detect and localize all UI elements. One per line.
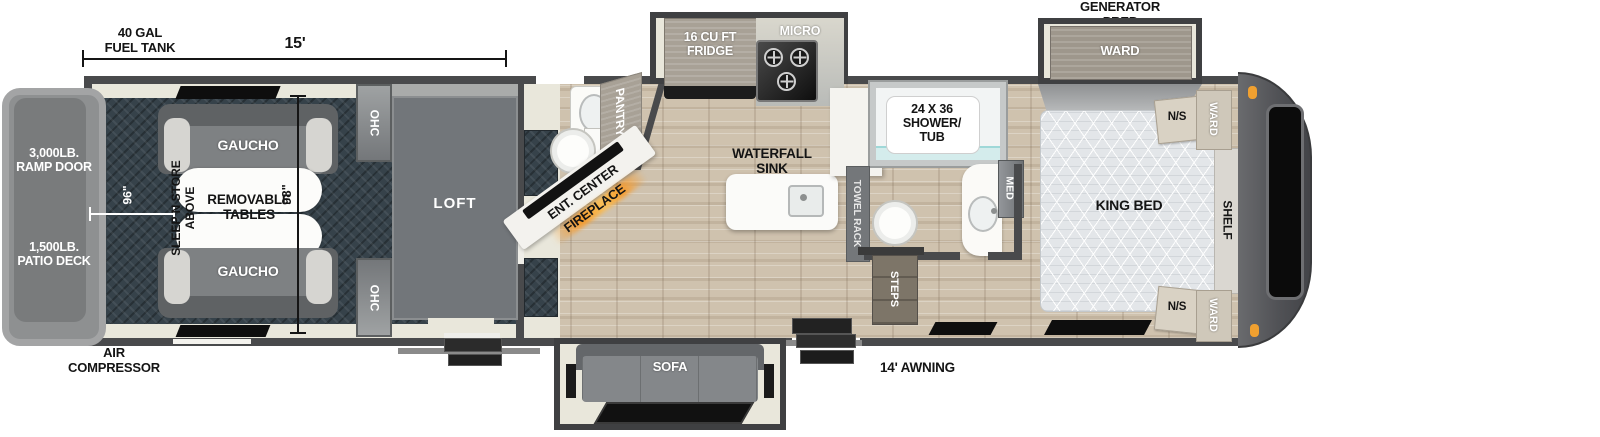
dim-tick-98-bottom	[290, 332, 306, 334]
ward-top-label: WARD	[1196, 90, 1230, 148]
burner-icon	[777, 72, 796, 91]
bedroom-floor-mat	[1044, 320, 1152, 335]
waterfall-sink-label: WATERFALLSINK	[714, 146, 830, 176]
bath-entry-mat	[929, 322, 998, 335]
sleep-n-store-label: SLEEP N STOREABOVE	[123, 189, 243, 227]
ramp-door-label: 3,000LB.RAMP DOOR	[2, 146, 106, 174]
dim-tick-98-top	[290, 95, 306, 97]
roof-hatch-top	[175, 86, 280, 99]
front-cap-window	[1266, 104, 1304, 300]
fridge-label: 16 CU FTFRIDGE	[664, 30, 756, 58]
entry-step-2	[796, 334, 856, 348]
burner-icon	[764, 48, 783, 67]
bath-toilet-icon	[872, 200, 918, 246]
gaucho-top-label: GAUCHO	[158, 138, 338, 154]
dim-tick-96-left	[89, 207, 91, 221]
entry-step-3	[800, 350, 854, 364]
ramp-door-panel	[14, 98, 86, 322]
marker-light-bottom-icon	[1250, 324, 1259, 337]
bedroom-steps-platform	[858, 247, 924, 255]
dim-tick-15ft-left	[82, 50, 84, 67]
sofa-slide-window-left	[566, 364, 576, 398]
ohc-bottom-label: OHC	[356, 258, 392, 337]
ward-bottom-label: WARD	[1196, 290, 1230, 340]
fuel-tank-label: 40 GALFUEL TANK	[85, 26, 195, 55]
bottom-wall-white-seg	[173, 339, 251, 344]
dim-tick-15ft-right	[505, 50, 507, 67]
patio-deck-label: 1,500LB.PATIO DECK	[2, 240, 106, 268]
dim-line-15ft	[83, 58, 507, 60]
shower-label: 24 X 36SHOWER/TUB	[886, 102, 978, 144]
bath-bottom-wall-right	[988, 252, 1022, 260]
bath-right-wall	[1014, 164, 1022, 260]
ward-slide-label: WARD	[1050, 44, 1190, 59]
garage-fold-step-1	[444, 338, 502, 352]
garage-fold-step-2	[448, 354, 502, 366]
nightstand-bottom-label: N/S	[1156, 301, 1198, 314]
vanity-sink-icon	[968, 196, 998, 232]
air-compressor-label: AIRCOMPRESSOR	[58, 346, 170, 375]
sofa-label: SOFA	[576, 360, 764, 375]
marker-light-top-icon	[1248, 86, 1257, 99]
dim-98-label: 98"	[266, 176, 306, 212]
ohc-top-label: OHC	[356, 84, 392, 162]
dim-line-98	[297, 96, 299, 334]
top-wall-gap	[536, 76, 584, 84]
fridge-base	[664, 86, 756, 99]
cooktop-icon	[756, 40, 818, 102]
island-sink-basin	[788, 185, 824, 217]
bedroom-steps-label: STEPS	[872, 255, 916, 323]
sofa-slide-window-right	[764, 364, 774, 398]
nightstand-top-label: N/S	[1156, 111, 1198, 124]
awning-label: 14' AWNING	[880, 360, 1010, 375]
micro-label: MICRO	[756, 24, 844, 38]
king-bed-label: KING BED	[1040, 198, 1218, 214]
sofa-slide-mat	[594, 402, 755, 424]
island-faucet-icon	[800, 194, 807, 201]
vanity-faucet-icon	[991, 208, 997, 214]
entry-step-1	[792, 318, 852, 334]
burner-icon	[790, 48, 809, 67]
rv-floorplan: 40 GALFUEL TANK 15' GENERATORPREP 3,000L…	[0, 0, 1600, 437]
towel-rack-label: TOWEL RACK	[846, 166, 868, 260]
roof-hatch-bottom	[176, 325, 271, 337]
dim-15ft-label: 15'	[255, 35, 335, 53]
gaucho-bottom-label: GAUCHO	[158, 264, 338, 280]
